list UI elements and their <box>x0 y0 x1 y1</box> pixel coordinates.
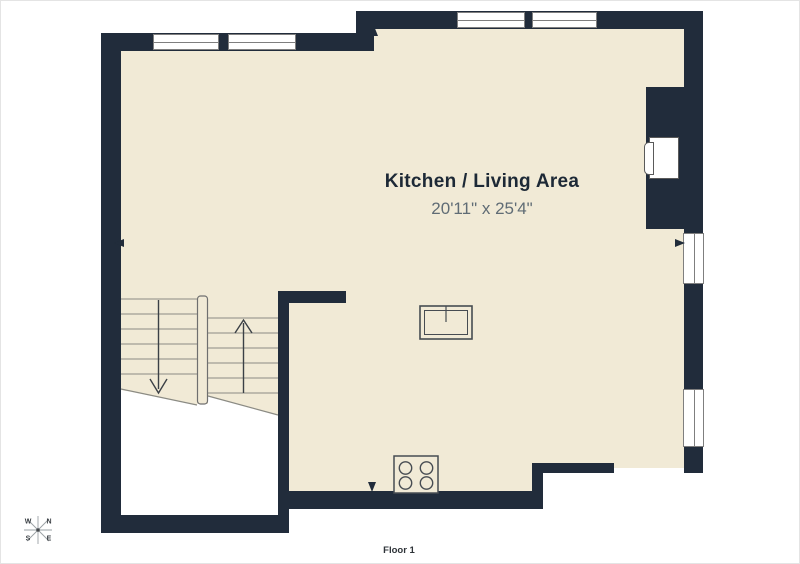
compass-east-label: E <box>47 536 52 543</box>
compass-south-label: S <box>26 536 31 543</box>
compass-west-label: W <box>25 519 32 526</box>
window <box>683 389 704 447</box>
floorplan-page: W N S E Kitchen / Living Area 20'11" x 2… <box>0 0 800 564</box>
window <box>457 12 525 28</box>
window <box>228 34 296 50</box>
wall-bottom-upper <box>532 463 614 473</box>
wall-left <box>101 33 121 533</box>
room-label: Kitchen / Living Area <box>332 171 632 193</box>
wall-top-right <box>356 11 703 29</box>
room-dimensions: 20'11" x 25'4" <box>332 199 632 219</box>
window <box>683 233 704 284</box>
window <box>532 12 597 28</box>
compass-north-label: N <box>46 519 51 526</box>
fireplace-door-icon <box>644 142 654 175</box>
window <box>153 34 219 50</box>
wall-bottom-main <box>278 491 543 509</box>
floor-area <box>111 41 686 468</box>
floor-label: Floor 1 <box>349 545 449 556</box>
wall-stairwell-bottom <box>101 515 289 533</box>
